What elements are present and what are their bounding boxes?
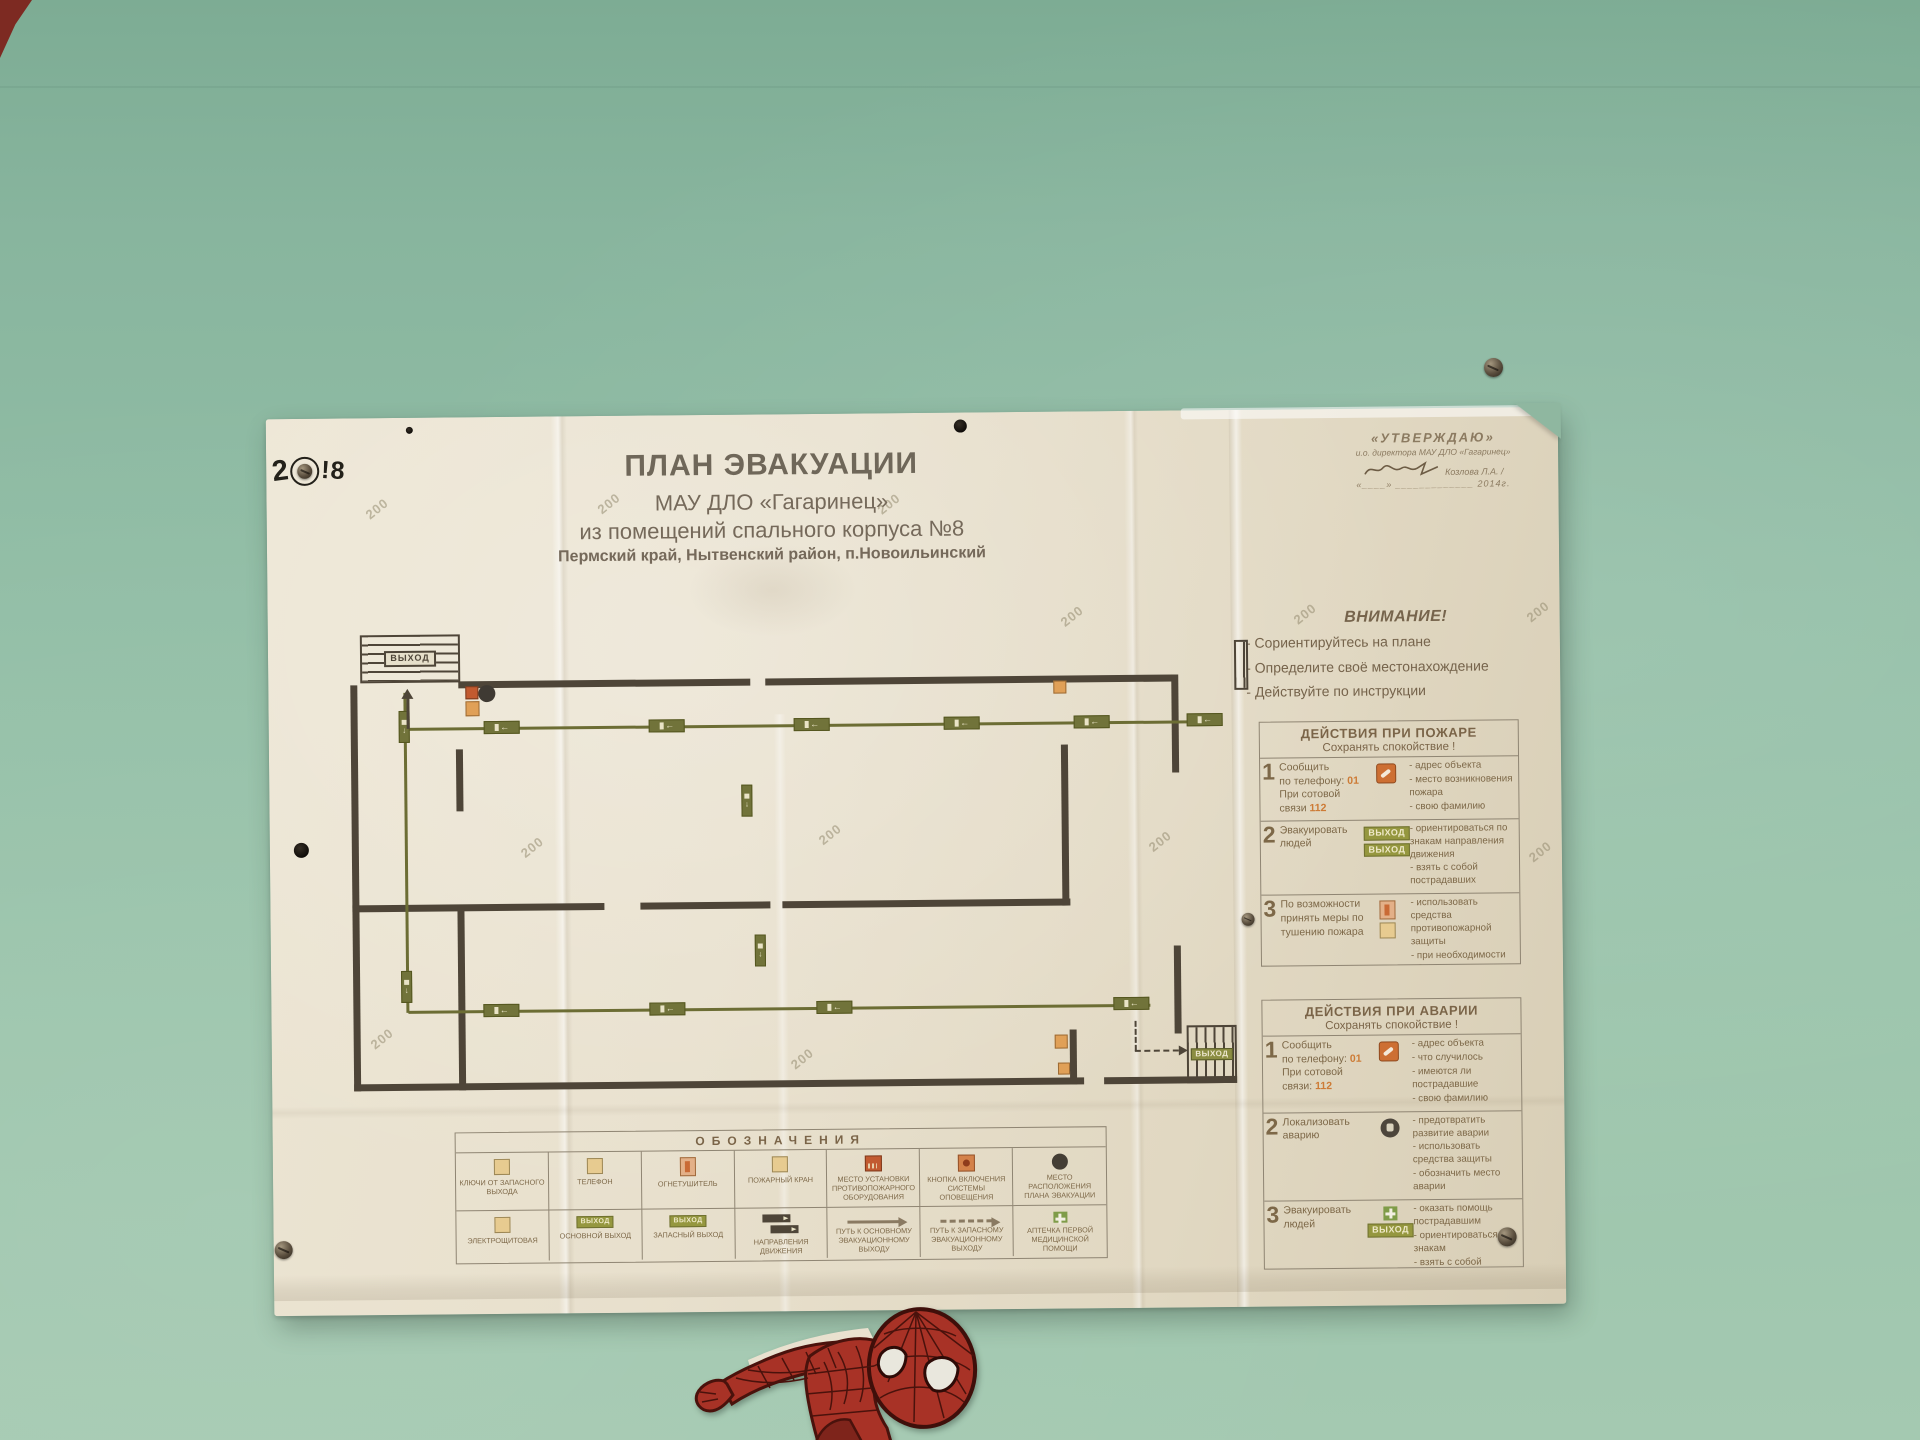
legend-cell: ТЕЛЕФОН: [549, 1152, 642, 1210]
graffiti-2018: 2 !8: [272, 454, 346, 488]
arrow-up-main-exit: [406, 697, 409, 729]
legend-caption: КЛЮЧИ ОТ ЗАПАСНОГО ВЫХОДА: [458, 1179, 546, 1198]
exit-direction-sign: ←: [816, 1001, 852, 1014]
instruction-row: 3 Эвакуировать людей ВЫХОД - оказать пом…: [1264, 1198, 1523, 1269]
legend-caption: ПУТЬ К ЗАПАСНОМУ ЭВАКУАЦИОННОМУ ВЫХОДУ: [923, 1226, 1011, 1254]
graffiti-text: !8: [321, 456, 347, 486]
poster-subtitle-location: Пермский край, Нытвенский район, п.Новои…: [472, 543, 1072, 567]
first-aid-icon: [1053, 1212, 1067, 1223]
action-text: связи:: [1282, 1080, 1315, 1092]
exit-direction-sign: ←: [794, 718, 830, 731]
instruction-details: - предотвратить развитие аварии - исполь…: [1412, 1114, 1518, 1196]
legend-cell: ОГНЕТУШИТЕЛЬ: [641, 1151, 734, 1209]
legend-cell: ПУТЬ К ОСНОВНОМУ ЭВАКУАЦИОННОМУ ВЫХОДУ: [828, 1206, 921, 1258]
legend-cell: КЛЮЧИ ОТ ЗАПАСНОГО ВЫХОДА: [456, 1153, 549, 1211]
instruction-number: 2: [1263, 824, 1281, 891]
poster-subtitle-building: из помещений спального корпуса №8: [472, 514, 1072, 546]
exit-sign-vertical: ↓: [755, 934, 766, 966]
instruction-action: Локализовать аварию: [1282, 1115, 1367, 1196]
plan-wall: [1070, 1029, 1078, 1084]
accident-actions-box: ДЕЙСТВИЯ ПРИ АВАРИИ Сохранять спокойстви…: [1261, 997, 1524, 1269]
instruction-action: Эвакуировать людей: [1283, 1204, 1368, 1270]
legend-caption: ОСНОВНОЙ ВЫХОД: [560, 1231, 631, 1241]
plan-wall: [782, 899, 1070, 909]
plan-wall: [456, 749, 464, 811]
legend-caption: МЕСТО РАСПОЛОЖЕНИЯ ПЛАНА ЭВАКУАЦИИ: [1015, 1173, 1104, 1201]
detail-line: - место возникновения пожара: [1409, 773, 1514, 800]
attention-title: ВНИМАНИЕ!: [1246, 607, 1546, 628]
detail-line: - предотвратить развитие аварии: [1412, 1114, 1517, 1141]
photo-scene: 200200200200200200200200200200200200 ПЛА…: [0, 0, 1920, 1440]
alarm-button-icon: [958, 1154, 975, 1171]
screw: [1498, 1227, 1517, 1246]
arrow-up-main-exit: [401, 689, 413, 699]
legend-cell: ВЫХОДЗАПАСНЫЙ ВЫХОД: [642, 1208, 735, 1260]
main-exit-badge: ВЫХОД: [577, 1216, 614, 1228]
direction-signs-icon: [763, 1214, 799, 1234]
poster-title-block: ПЛАН ЭВАКУАЦИИ МАУ ДЛО «Гагаринец» из по…: [471, 445, 1072, 567]
phone-icon: [1379, 1041, 1399, 1061]
emergency-exit-badge: ВЫХОД: [669, 1215, 706, 1227]
plan-wall: [350, 685, 361, 1091]
emergency-route-arrow-icon: [941, 1219, 993, 1222]
fire-actions-subtitle: Сохранять спокойствие !: [1262, 740, 1516, 754]
legend-caption: МЕСТО УСТАНОВКИ ПРОТИВОПОЖАРНОГО ОБОРУДО…: [829, 1175, 917, 1203]
electrical-panel-icon: [494, 1217, 510, 1233]
accident-actions-title: ДЕЙСТВИЯ ПРИ АВАРИИ: [1264, 1002, 1518, 1019]
signature-scribble: [1363, 459, 1441, 478]
action-text: При сотовой: [1279, 788, 1340, 801]
instruction-action: Эвакуировать людей: [1280, 823, 1365, 890]
instruction-action: По возможности принять меры по тушению п…: [1280, 898, 1365, 967]
plan-wall: [765, 675, 1173, 686]
staircase-main-exit: ВЫХОД: [360, 634, 460, 683]
detail-line: - использовать средства защиты: [1413, 1141, 1518, 1168]
fire-hydrant-icon: [772, 1156, 788, 1172]
fire-actions-box: ДЕЙСТВИЯ ПРИ ПОЖАРЕ Сохранять спокойстви…: [1259, 719, 1521, 966]
screw-hole: [406, 427, 413, 434]
screw: [290, 457, 319, 486]
plan-location-marker: [478, 685, 495, 702]
instruction-row: 1 Сообщить по телефону: 01 При сотовой с…: [1260, 755, 1519, 820]
approval-name: Козлова Л.А. /: [1445, 466, 1504, 477]
fire-extinguisher-icon: [679, 1157, 695, 1176]
fire-actions-title: ДЕЙСТВИЯ ПРИ ПОЖАРЕ: [1262, 724, 1516, 741]
graffiti-text: 2: [270, 454, 290, 489]
legend-cell: ПОЖАРНЫЙ КРАН: [734, 1150, 827, 1208]
instruction-number: 3: [1266, 1205, 1284, 1270]
fire-extinguisher-icon: [1379, 901, 1395, 920]
plan-wall: [458, 679, 750, 689]
legend-caption: НАПРАВЛЕНИЯ ДВИЖЕНИЯ: [737, 1238, 825, 1257]
instruction-action: Сообщить по телефону: 01 При сотовой свя…: [1282, 1039, 1367, 1108]
instruction-row: 1 Сообщить по телефону: 01 При сотовой с…: [1263, 1033, 1522, 1112]
phone-number: 112: [1315, 1080, 1332, 1092]
exit-direction-sign: ←: [1113, 997, 1149, 1010]
instruction-details: - адрес объекта - место возникновения по…: [1409, 759, 1515, 815]
instruction-number: 1: [1262, 762, 1280, 817]
phone-number: 01: [1347, 774, 1359, 786]
watermark: 200: [363, 495, 392, 522]
legend-cell: МЕСТО РАСПОЛОЖЕНИЯ ПЛАНА ЭВАКУАЦИИ: [1013, 1147, 1106, 1205]
plan-location-icon: [1051, 1154, 1067, 1170]
exit-direction-sign: ←: [1074, 715, 1110, 728]
phone-number: 112: [1309, 802, 1326, 814]
legend-cell: АПТЕЧКА ПЕРВОЙ МЕДИЦИНСКОЙ ПОМОЩИ: [1013, 1204, 1106, 1256]
instruction-number: 1: [1265, 1039, 1283, 1108]
dashed-route-arrow: [1179, 1045, 1188, 1055]
fire-equipment-icon: [1053, 681, 1066, 694]
exit-direction-sign: ←: [649, 1002, 685, 1015]
exit-label-badge: ВЫХОД: [384, 651, 436, 667]
legend-caption: ЭЛЕКТРОЩИТОВАЯ: [467, 1237, 537, 1247]
phone-number: 01: [1350, 1052, 1362, 1064]
instruction-action: Сообщить по телефону: 01 При сотовой свя…: [1279, 761, 1364, 816]
spiderman-drawing: [688, 1282, 988, 1440]
exit-label-badge: ВЫХОД: [1191, 1048, 1232, 1061]
fire-equipment-icon: [1055, 1035, 1068, 1049]
screw-hole: [954, 419, 967, 432]
exit-direction-sign: ←: [483, 1004, 519, 1017]
detail-line: - обозначить место аварии: [1413, 1168, 1518, 1195]
instruction-number: 3: [1263, 899, 1281, 967]
detail-line: - свою фамилию: [1412, 1092, 1517, 1106]
dashed-route: [1135, 1049, 1179, 1051]
plan-wall: [457, 907, 466, 1090]
staircase-marks: [1234, 640, 1248, 690]
legend-caption: ЗАПАСНЫЙ ВЫХОД: [653, 1231, 723, 1241]
telephone-icon: [587, 1158, 603, 1174]
screw-hole: [294, 843, 309, 858]
detail-line: - свою фамилию: [1409, 800, 1514, 814]
approval-block: «УТВЕРЖДАЮ» и.о. директора МАУ ДЛО «Гага…: [1314, 429, 1553, 490]
staircase-emergency-exit: ВЫХОД: [1187, 1025, 1238, 1083]
instruction-row: 2 Эвакуировать людей ВЫХОД ВЫХОД - ориен…: [1261, 818, 1520, 895]
exit-keys-icon: [494, 1159, 510, 1175]
legend-box: ОБОЗНАЧЕНИЯ КЛЮЧИ ОТ ЗАПАСНОГО ВЫХОДА ТЕ…: [455, 1126, 1108, 1264]
detail-line: - взять с собой пострадавших: [1414, 1256, 1519, 1270]
detail-line: - оказать помощь пострадавшим: [1413, 1202, 1518, 1229]
legend-cell: ВЫХОДОСНОВНОЙ ВЫХОД: [549, 1209, 642, 1261]
legend-caption: ПУТЬ К ОСНОВНОМУ ЭВАКУАЦИОННОМУ ВЫХОДУ: [830, 1227, 918, 1255]
exit-direction-sign: ←: [484, 721, 520, 734]
approval-date-line: «____» _____________ 2014г.: [1314, 478, 1552, 490]
plan-wall: [352, 903, 604, 912]
legend-cell: КНОПКА ВКЛЮЧЕНИЯ СИСТЕМЫ ОПОВЕЩЕНИЯ: [920, 1148, 1013, 1206]
accident-actions-subtitle: Сохранять спокойствие !: [1265, 1018, 1519, 1032]
instruction-details: - ориентироваться по знакам направления …: [1410, 822, 1516, 890]
detail-line: - ориентироваться по знакам направления …: [1410, 822, 1515, 862]
gas-mask-icon: [1380, 1118, 1399, 1137]
detail-line: - взять с собой пострадавших: [1410, 862, 1515, 889]
legend-caption: КНОПКА ВКЛЮЧЕНИЯ СИСТЕМЫ ОПОВЕЩЕНИЯ: [922, 1175, 1010, 1203]
exit-badge: ВЫХОД: [1363, 843, 1410, 857]
screw: [1484, 358, 1503, 377]
poster-title: ПЛАН ЭВАКУАЦИИ: [471, 445, 1071, 485]
approval-header: «УТВЕРЖДАЮ»: [1314, 429, 1552, 446]
plan-wall: [1061, 745, 1070, 906]
action-text: по телефону:: [1282, 1052, 1350, 1065]
attention-item: - Сориентируйтесь на плане: [1246, 632, 1546, 652]
evacuation-plan-poster: 200200200200200200200200200200200200 ПЛА…: [266, 407, 1567, 1316]
exit-badge: ВЫХОД: [1363, 826, 1410, 840]
legend-cell: ЭЛЕКТРОЩИТОВАЯ: [456, 1210, 549, 1262]
evacuation-route: [408, 1004, 1150, 1014]
approval-role: и.о. директора МАУ ДЛО «Гагаринец»: [1314, 446, 1552, 458]
floor-plan: ←←←←←←←←←←↓↓↓↓ВЫХОДВЫХОД: [348, 623, 1244, 1104]
detail-line: - использовать средства противопожарной …: [1410, 897, 1515, 950]
legend-caption: ПОЖАРНЫЙ КРАН: [748, 1176, 813, 1186]
exit-sign-vertical: ↓: [741, 785, 752, 817]
screw: [275, 1241, 293, 1259]
first-aid-icon: [1383, 1207, 1397, 1221]
screw: [1242, 913, 1255, 926]
dashed-route: [1135, 1021, 1137, 1051]
detail-line: - адрес объекта: [1409, 759, 1514, 773]
instruction-row: 2 Локализовать аварию - предотвратить ра…: [1263, 1110, 1522, 1201]
exit-direction-sign: ←: [944, 716, 980, 729]
action-text: Сообщить: [1279, 761, 1329, 773]
spiderman-hand: [696, 1380, 733, 1411]
action-text: по телефону:: [1279, 774, 1347, 787]
legend-cell: МЕСТО УСТАНОВКИ ПРОТИВОПОЖАРНОГО ОБОРУДО…: [827, 1149, 920, 1207]
exit-direction-sign: ←: [1187, 713, 1223, 726]
attention-item: - Определите своё местонахождение: [1246, 656, 1546, 676]
watermark: 200: [1526, 838, 1555, 865]
instruction-row: 3 По возможности принять меры по тушению…: [1261, 893, 1520, 967]
attention-block: ВНИМАНИЕ! - Сориентируйтесь на плане - О…: [1246, 607, 1547, 701]
instruction-details: - адрес объекта - что случилось - имеютс…: [1412, 1037, 1518, 1107]
action-text: связи: [1279, 802, 1309, 814]
plan-wall: [1174, 945, 1182, 1033]
legend-caption: ТЕЛЕФОН: [577, 1178, 613, 1187]
legend-cell: ПУТЬ К ЗАПАСНОМУ ЭВАКУАЦИОННОМУ ВЫХОДУ: [921, 1205, 1014, 1257]
instruction-details: - использовать средства противопожарной …: [1410, 897, 1516, 967]
phone-icon: [1376, 763, 1396, 783]
instruction-number: 2: [1265, 1116, 1283, 1197]
detail-line: - что случилось: [1412, 1051, 1517, 1065]
fire-equipment-icon: [865, 1155, 882, 1171]
fire-equipment-icon: [465, 701, 479, 716]
detail-line: - при необходимости обесточить помещения: [1411, 949, 1516, 966]
legend-grid: КЛЮЧИ ОТ ЗАПАСНОГО ВЫХОДА ТЕЛЕФОН ОГНЕТУ…: [456, 1146, 1107, 1261]
exit-direction-sign: ←: [649, 719, 685, 732]
legend-cell: НАПРАВЛЕНИЯ ДВИЖЕНИЯ: [735, 1207, 828, 1259]
electrical-panel-icon: [1380, 923, 1396, 939]
detail-line: - адрес объекта: [1412, 1037, 1517, 1051]
poster-subtitle-org: МАУ ДЛО «Гагаринец»: [471, 486, 1071, 518]
exit-badge: ВЫХОД: [1367, 1223, 1414, 1237]
action-text: При сотовой: [1282, 1066, 1343, 1079]
action-text: Сообщить: [1282, 1039, 1332, 1051]
wall-seam: [0, 86, 1920, 88]
plan-wall: [640, 901, 770, 909]
main-route-arrow-icon: [848, 1220, 900, 1223]
exit-sign-vertical: ↓: [401, 971, 412, 1003]
attention-item: - Действуйте по инструкции: [1246, 681, 1546, 701]
detail-line: - имеются ли пострадавшие: [1412, 1065, 1517, 1092]
fire-equipment-icon: [1058, 1063, 1070, 1075]
legend-caption: АПТЕЧКА ПЕРВОЙ МЕДИЦИНСКОЙ ПОМОЩИ: [1016, 1227, 1105, 1255]
legend-caption: ОГНЕТУШИТЕЛЬ: [658, 1180, 718, 1189]
fire-equipment-icon: [465, 686, 478, 699]
